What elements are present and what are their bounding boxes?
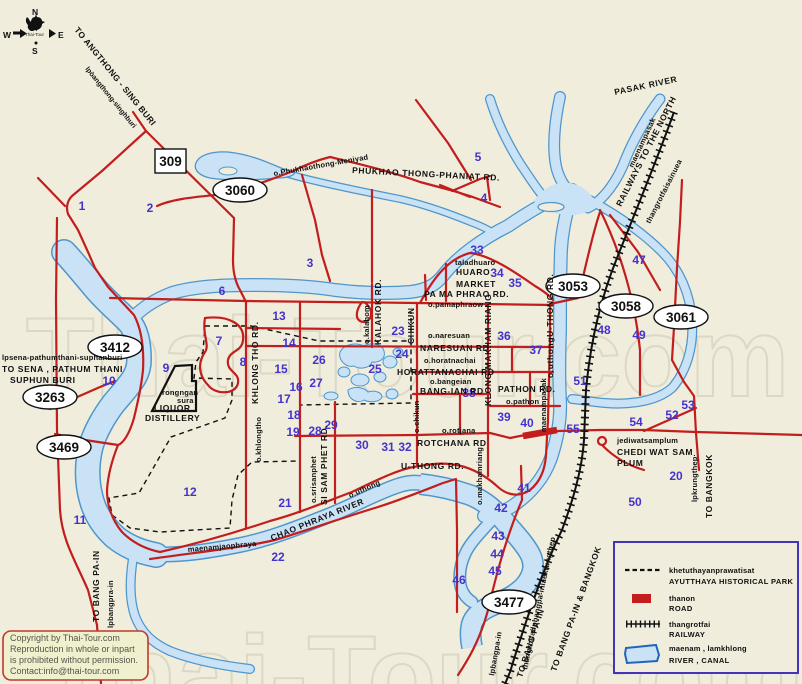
svg-text:19: 19: [286, 425, 300, 439]
svg-text:8: 8: [240, 355, 247, 369]
svg-text:14: 14: [282, 336, 296, 350]
svg-text:3058: 3058: [611, 299, 642, 314]
svg-text:9: 9: [163, 361, 170, 375]
svg-text:HORATTANACHAI RD: HORATTANACHAI RD: [397, 367, 495, 377]
svg-text:3263: 3263: [35, 390, 66, 405]
svg-text:12: 12: [183, 485, 197, 499]
svg-text:52: 52: [665, 408, 679, 422]
svg-text:3: 3: [307, 256, 314, 270]
svg-text:41: 41: [517, 481, 531, 495]
svg-text:KLONG MAKHAM RIANG: KLONG MAKHAM RIANG: [483, 294, 493, 406]
svg-text:taladhuaro: taladhuaro: [455, 258, 496, 267]
svg-text:S: S: [32, 46, 38, 56]
svg-text:RIVER , CANAL: RIVER , CANAL: [669, 656, 730, 665]
svg-text:MARKET: MARKET: [456, 279, 496, 289]
svg-text:jediwatsamplum: jediwatsamplum: [616, 436, 678, 445]
svg-text:o.khlongtho: o.khlongtho: [254, 417, 263, 462]
svg-text:46: 46: [452, 573, 466, 587]
svg-text:23: 23: [391, 324, 405, 338]
svg-text:30: 30: [355, 438, 369, 452]
svg-text:51: 51: [573, 374, 587, 388]
svg-text:lpbangpra-in: lpbangpra-in: [106, 580, 115, 628]
svg-text:TO SENA , PATHUM THANI: TO SENA , PATHUM THANI: [2, 364, 123, 374]
svg-text:o.pamaphraow: o.pamaphraow: [428, 300, 483, 309]
svg-text:khetuthayanprawatisat: khetuthayanprawatisat: [669, 566, 755, 575]
svg-text:24: 24: [395, 347, 409, 361]
svg-text:20: 20: [669, 469, 683, 483]
svg-text:o.rotjana: o.rotjana: [442, 426, 476, 435]
svg-text:o.makhamriang: o.makhamriang: [475, 447, 484, 505]
svg-text:42: 42: [494, 501, 508, 515]
svg-text:25: 25: [368, 362, 382, 376]
svg-text:NARESUAN RD: NARESUAN RD: [420, 343, 489, 353]
svg-text:o.horatnachai: o.horatnachai: [424, 356, 476, 365]
svg-text:3469: 3469: [49, 440, 79, 455]
svg-text:309: 309: [159, 154, 182, 169]
svg-text:4: 4: [481, 191, 488, 205]
svg-text:32: 32: [398, 440, 412, 454]
svg-text:34: 34: [490, 266, 504, 280]
svg-text:45: 45: [488, 564, 502, 578]
svg-text:thanon: thanon: [669, 594, 695, 603]
svg-text:o.kalahom: o.kalahom: [362, 305, 371, 344]
svg-text:27: 27: [309, 376, 323, 390]
svg-text:ROAD: ROAD: [669, 604, 693, 613]
svg-text:16: 16: [289, 380, 303, 394]
svg-text:lpkrungthep·: lpkrungthep·: [690, 454, 699, 502]
svg-text:PLUM: PLUM: [617, 458, 643, 468]
svg-text:2: 2: [147, 201, 154, 215]
svg-text:6: 6: [219, 284, 226, 298]
svg-text:is prohibited without permissi: is prohibited without permission.: [10, 655, 138, 665]
svg-text:3061: 3061: [666, 310, 697, 325]
svg-text:PA MA PHRAO RD.: PA MA PHRAO RD.: [424, 289, 509, 299]
svg-text:LIQUOR: LIQUOR: [154, 403, 191, 413]
svg-text:39: 39: [497, 410, 511, 424]
svg-text:49: 49: [632, 328, 646, 342]
svg-text:13: 13: [272, 309, 286, 323]
svg-text:37: 37: [529, 343, 543, 357]
svg-text:ROTCHANA RD: ROTCHANA RD: [417, 438, 487, 448]
svg-text:DISTILLERY: DISTILLERY: [145, 413, 200, 423]
svg-text:Reproduction in whole or inpar: Reproduction in whole or inpart: [10, 644, 135, 654]
svg-text:3053: 3053: [558, 279, 589, 294]
svg-text:o.uthongU-THONG RD.: o.uthongU-THONG RD.: [545, 274, 555, 378]
svg-text:22: 22: [271, 550, 285, 564]
svg-text:33: 33: [470, 243, 484, 257]
svg-text:W: W: [3, 30, 12, 40]
svg-text:o.chikun: o.chikun: [412, 400, 421, 433]
svg-text:SI SAM PHET RD.: SI SAM PHET RD.: [319, 425, 329, 505]
svg-text:Contact:info@thai-tour.com: Contact:info@thai-tour.com: [10, 666, 119, 676]
svg-text:54: 54: [629, 415, 643, 429]
svg-text:CHEDI WAT SAM: CHEDI WAT SAM: [617, 447, 693, 457]
svg-text:1: 1: [79, 199, 86, 213]
svg-text:10: 10: [102, 374, 116, 388]
svg-text:TO BANGKOK: TO BANGKOK: [704, 454, 714, 518]
svg-text:43: 43: [491, 529, 505, 543]
svg-text:E: E: [58, 30, 64, 40]
svg-text:53: 53: [681, 398, 695, 412]
svg-text:lpsena-pathumthani-suphanburi: lpsena-pathumthani-suphanburi: [2, 353, 122, 362]
svg-text:SUPHUN BURI: SUPHUN BURI: [10, 375, 76, 385]
svg-text:o.pathon: o.pathon: [506, 397, 539, 406]
svg-text:maenam , lamkhlong: maenam , lamkhlong: [669, 644, 747, 653]
svg-text:15: 15: [274, 362, 288, 376]
svg-text:31: 31: [381, 440, 395, 454]
svg-text:U-THONG RD.: U-THONG RD.: [401, 461, 464, 471]
svg-text:KHLONG THO RD.: KHLONG THO RD.: [250, 321, 260, 404]
svg-text:CHIKUN: CHIKUN: [406, 307, 416, 344]
svg-text:36: 36: [497, 329, 511, 343]
svg-text:48: 48: [597, 323, 611, 337]
svg-text:o.naresuan: o.naresuan: [428, 331, 470, 340]
svg-text:7: 7: [216, 334, 223, 348]
svg-text:17: 17: [277, 392, 291, 406]
svg-text:Copyright by Thai-Tour.com: Copyright by Thai-Tour.com: [10, 633, 120, 643]
svg-text:BANG-IAN RD: BANG-IAN RD: [420, 386, 484, 396]
svg-text:55: 55: [566, 422, 580, 436]
svg-text:18: 18: [287, 408, 301, 422]
svg-text:21: 21: [278, 496, 292, 510]
svg-text:AYUTTHAYA HISTORICAL PARK: AYUTTHAYA HISTORICAL PARK: [669, 577, 794, 586]
svg-text:thangrotfai: thangrotfai: [669, 620, 710, 629]
svg-text:40: 40: [520, 416, 534, 430]
svg-text:o.bangeian: o.bangeian: [430, 377, 472, 386]
svg-text:N: N: [32, 7, 39, 17]
svg-text:50: 50: [628, 495, 642, 509]
svg-text:5: 5: [475, 150, 482, 164]
svg-text:47: 47: [632, 253, 646, 267]
svg-text:11: 11: [74, 513, 87, 527]
svg-text:o.srisanphet: o.srisanphet: [309, 456, 318, 503]
svg-text:35: 35: [508, 276, 522, 290]
svg-text:RAILWAY: RAILWAY: [669, 630, 705, 639]
svg-text:KALAHOK RD.: KALAHOK RD.: [373, 279, 383, 345]
svg-text:3477: 3477: [494, 595, 524, 610]
svg-text:TO BANG PA-IN: TO BANG PA-IN: [91, 550, 101, 622]
svg-text:Thai-Tour: Thai-Tour: [25, 32, 45, 37]
svg-text:HUARO: HUARO: [456, 267, 490, 277]
svg-text:44: 44: [490, 547, 504, 561]
svg-text:maenampasak: maenampasak: [539, 377, 548, 432]
svg-text:26: 26: [312, 353, 326, 367]
svg-text:3060: 3060: [225, 183, 255, 198]
